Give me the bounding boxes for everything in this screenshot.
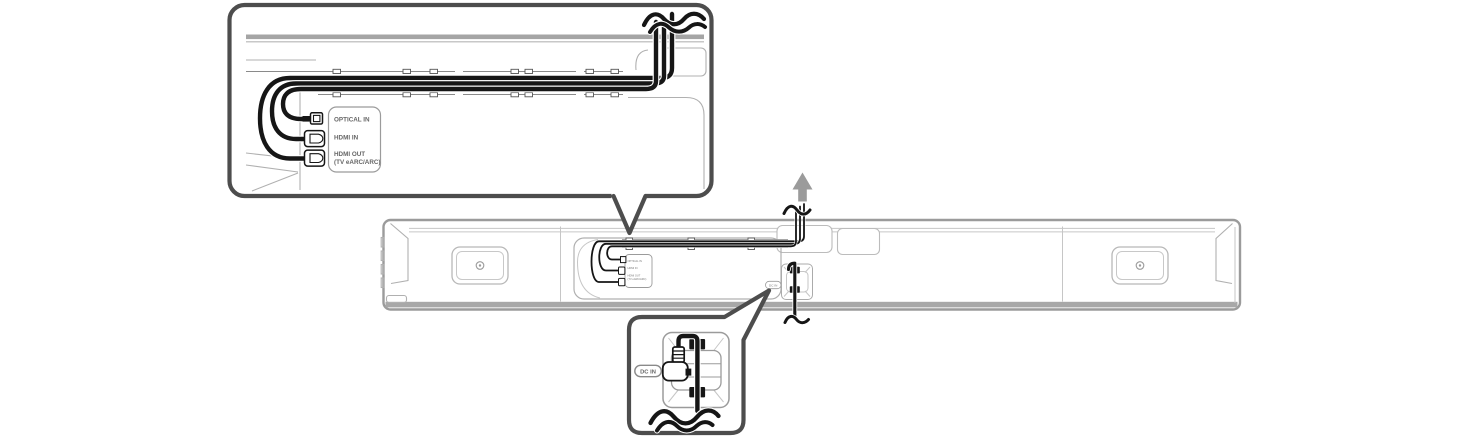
cable-routing-diagram: OPTICAL IN HDMI IN HDMI OUT (TV eARC/ARC… <box>0 0 1465 443</box>
mini-hdmi-out-label: HDMI OUT <box>628 274 641 278</box>
wall-mount-plate-right <box>1112 247 1168 284</box>
hdmi-out-label: HDMI OUT <box>334 151 365 158</box>
mini-optical-connector <box>621 257 626 263</box>
up-arrow-icon <box>793 173 813 202</box>
hdmi-out-sublabel: (TV eARC/ARC) <box>334 159 381 166</box>
bottom-callout: DC IN <box>629 291 769 434</box>
top-callout-box <box>230 5 712 196</box>
mini-hdmi-out-connector <box>619 278 625 285</box>
mini-port-panel: OPTICAL IN HDMI IN HDMI OUT (TV eARC/ARC… <box>625 255 652 288</box>
hdmi-out-connector <box>305 150 325 166</box>
cable-slack-squiggle-top <box>784 206 810 214</box>
diagram-canvas: OPTICAL IN HDMI IN HDMI OUT (TV eARC/ARC… <box>0 0 1465 443</box>
optical-in-label: OPTICAL IN <box>334 117 370 124</box>
dc-in-label-group: DC IN <box>635 365 662 376</box>
dc-in-mini-label: DC IN <box>769 283 777 287</box>
mini-hdmi-in-connector <box>619 267 625 274</box>
dc-in-label: DC IN <box>640 370 656 376</box>
mini-optical-label: OPTICAL IN <box>628 259 642 263</box>
soundbar-rear-view: OPTICAL IN HDMI IN HDMI OUT (TV eARC/ARC… <box>381 220 1240 310</box>
port-panel: OPTICAL IN HDMI IN HDMI OUT (TV eARC/ARC… <box>329 107 381 172</box>
hdmi-in-connector <box>305 131 325 147</box>
rear-side-panel <box>838 229 880 255</box>
top-callout: OPTICAL IN HDMI IN HDMI OUT (TV eARC/ARC… <box>230 5 712 233</box>
wall-mount-plate-left <box>452 247 508 284</box>
soundbar-bottom-band <box>386 302 1238 308</box>
hdmi-in-label: HDMI IN <box>334 135 359 142</box>
mini-hdmi-in-label: HDMI IN <box>628 266 638 270</box>
mini-hdmi-out-sublabel: (TV eARC/ARC) <box>628 277 647 281</box>
